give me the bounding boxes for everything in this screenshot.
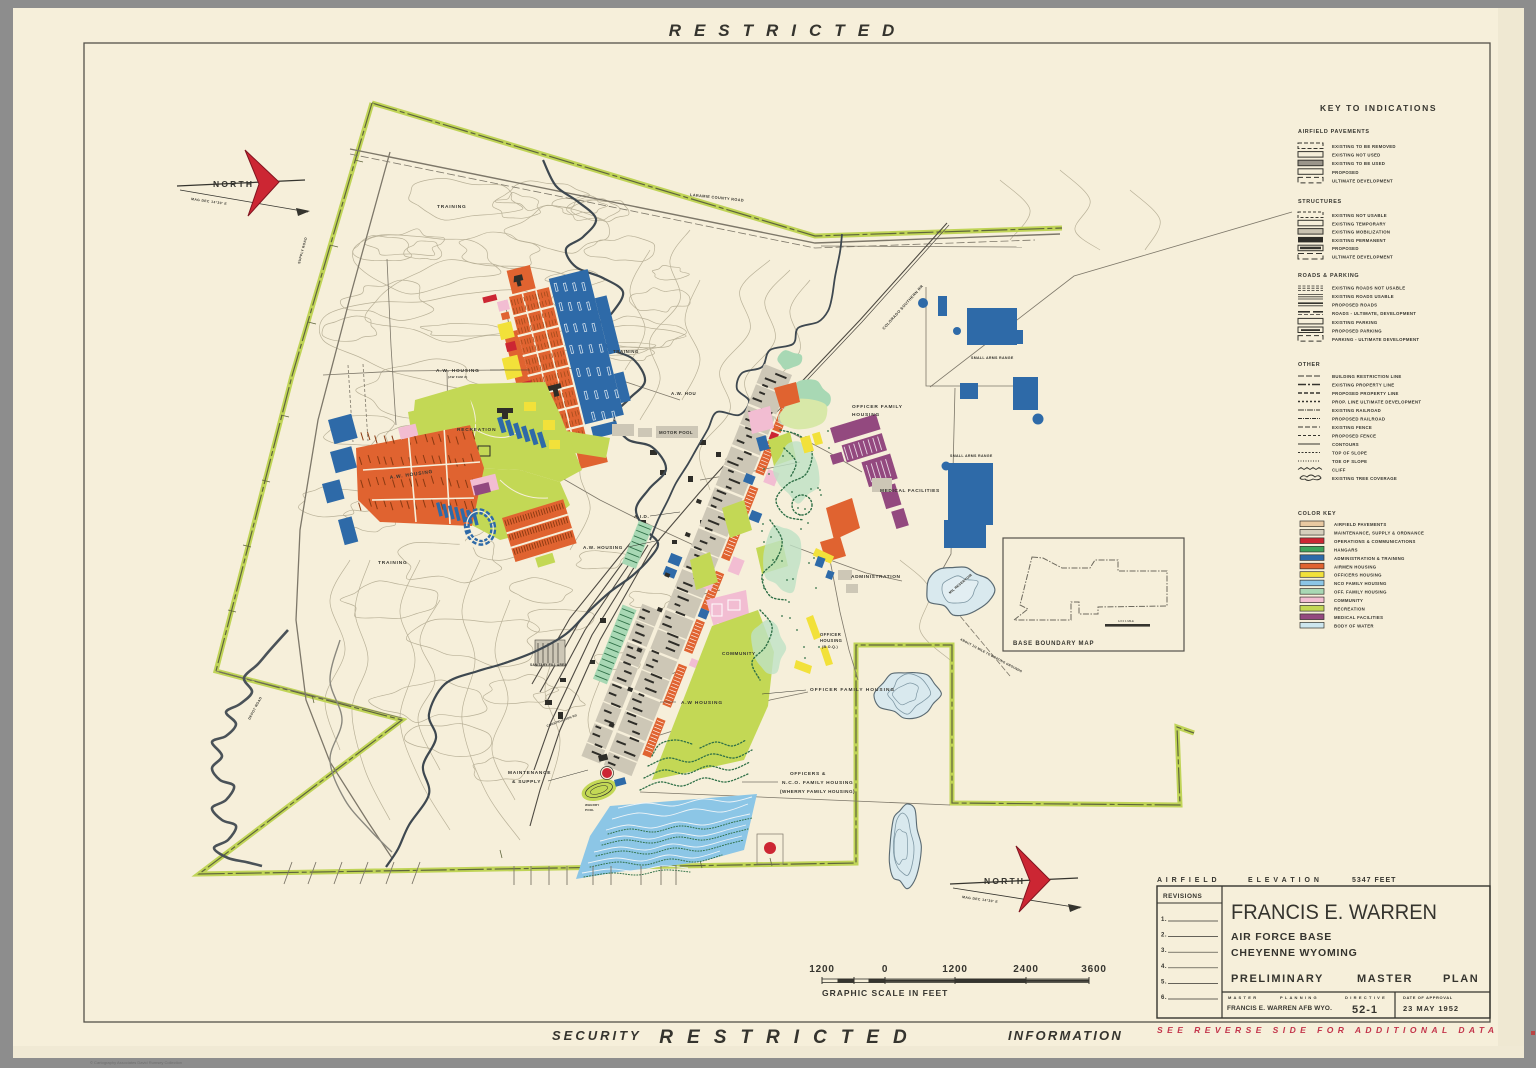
svg-text:MAINTENANCE, SUPPLY & ORDNA: MAINTENANCE, SUPPLY & ORDNANCE [1334,530,1424,535]
svg-text:N.C.O. FAMILY HOUSING: N.C.O. FAMILY HOUSING [782,780,853,786]
svg-text:HOUSING: HOUSING [820,638,842,643]
svg-text:A.W. HOU: A.W. HOU [671,391,696,396]
svg-text:EXISTING PARKING: EXISTING PARKING [1332,320,1378,325]
svg-text:FRANCIS E. WARREN: FRANCIS E. WARREN [1231,901,1437,924]
svg-text:A I R F I E L D: A I R F I E L D [1157,877,1218,884]
svg-text:ROADS & PARKING: ROADS & PARKING [1298,273,1359,279]
svg-text:CONTOURS: CONTOURS [1332,442,1359,447]
svg-text:NORTH: NORTH [213,179,254,189]
svg-text:NCO FAMILY HOUSING: NCO FAMILY HOUSING [1334,581,1387,586]
svg-text:PROPOSED: PROPOSED [1332,170,1359,175]
svg-text:AIRFIELD PAVEMENTS: AIRFIELD PAVEMENTS [1298,129,1370,135]
svg-text:5347 FEET: 5347 FEET [1352,877,1396,884]
svg-text:EXISTING NOT USABLE: EXISTING NOT USABLE [1332,213,1387,218]
svg-text:REVISIONS: REVISIONS [1163,893,1203,900]
svg-text:AIR FORCE BASE: AIR FORCE BASE [1231,931,1332,943]
svg-text:AIRMEN HOUSING: AIRMEN HOUSING [1334,564,1377,569]
svg-text:EXISTING TO BE USED: EXISTING TO BE USED [1332,161,1385,166]
svg-text:POOL: POOL [585,808,594,812]
svg-text:EXISTING PERMANENT: EXISTING PERMANENT [1332,238,1386,243]
svg-text:EXISTING FENCE: EXISTING FENCE [1332,425,1372,430]
svg-text:RECREATION: RECREATION [1334,607,1365,612]
svg-text:EXISTING MOBILIZATION: EXISTING MOBILIZATION [1332,230,1390,235]
svg-text:HOUSING: HOUSING [852,412,880,418]
svg-text:EXISTING TREE COVERAGE: EXISTING TREE COVERAGE [1332,476,1397,481]
svg-text:© Cartography Associates Davi: © Cartography Associates David Rumsey Co… [90,1060,182,1065]
svg-text:PARKING - ULTIMATE DEVELOPMEN: PARKING - ULTIMATE DEVELOPMENT [1332,337,1419,342]
svg-text:PROPOSED RAILROAD: PROPOSED RAILROAD [1332,417,1385,422]
svg-text:MEDICAL FACILITIES: MEDICAL FACILITIES [1334,615,1383,620]
svg-text:RESTRICTED: RESTRICTED [669,21,908,40]
svg-text:TRAINING: TRAINING [613,349,639,354]
svg-text:NORTH: NORTH [984,876,1025,886]
svg-text:OPERATIONS & COMMUNICATIONS: OPERATIONS & COMMUNICATIONS [1334,539,1416,544]
svg-text:SMALL ARMS RANGE: SMALL ARMS RANGE [971,356,1014,360]
svg-text:CLIFF: CLIFF [1332,468,1346,473]
svg-text:D I R E C T I V E: D I R E C T I V E [1345,995,1385,1000]
svg-text:3600: 3600 [1081,964,1106,975]
svg-text:MAINTENANCE: MAINTENANCE [508,770,551,776]
svg-text:OTHER: OTHER [1298,362,1320,368]
svg-text:ULTIMATE DEVELOPMENT: ULTIMATE DEVELOPMENT [1332,178,1393,183]
svg-text:OFFICER FAMILY HOUSING: OFFICER FAMILY HOUSING [810,687,895,693]
svg-text:6.: 6. [1161,995,1167,1001]
svg-text:PROPOSED PARKING: PROPOSED PARKING [1332,328,1382,333]
svg-text:M A S T E R: M A S T E R [1228,995,1257,1000]
svg-text:MOTOR POOL: MOTOR POOL [659,430,693,435]
svg-text:RESTRICTED: RESTRICTED [659,1027,920,1048]
svg-text:COMMUNITY: COMMUNITY [1334,598,1363,603]
svg-text:AIRFIELD PAVEMENTS: AIRFIELD PAVEMENTS [1334,522,1387,527]
svg-text:WHERRY: WHERRY [585,803,599,807]
svg-text:ADMINISTRATION: ADMINISTRATION [851,574,901,580]
svg-text:KEY TO INDICATIONS: KEY TO INDICATIONS [1320,103,1437,113]
svg-text:DATE OF APPROVAL: DATE OF APPROVAL [1403,995,1453,1000]
svg-text:4.: 4. [1161,964,1167,970]
svg-text:OFFICERS HOUSING: OFFICERS HOUSING [1334,573,1382,578]
svg-text:STRUCTURES: STRUCTURES [1298,199,1342,205]
svg-text:1200: 1200 [942,964,967,975]
svg-text:EXISTING PROPERTY LINE: EXISTING PROPERTY LINE [1332,383,1394,388]
svg-text:GRAPHIC SCALE IN FEET: GRAPHIC SCALE IN FEET [822,988,948,998]
svg-text:& SUPPLY: & SUPPLY [512,779,541,785]
svg-text:PROPOSED ROADS: PROPOSED ROADS [1332,303,1377,308]
svg-text:1.: 1. [1161,917,1167,923]
svg-text:TOP OF SLOPE: TOP OF SLOPE [1332,451,1367,456]
svg-text:(B.O.Q.): (B.O.Q.) [822,645,838,649]
svg-text:TRAINING: TRAINING [378,560,408,566]
svg-text:PROPOSED PROPERTY LINE: PROPOSED PROPERTY LINE [1332,391,1399,396]
svg-text:SECURITY: SECURITY [552,1028,642,1043]
svg-text:EXISTING TEMPORARY: EXISTING TEMPORARY [1332,221,1386,226]
svg-text:23 MAY 1952: 23 MAY 1952 [1403,1004,1459,1013]
svg-text:BASE BOUNDARY MAP: BASE BOUNDARY MAP [1013,641,1094,647]
svg-text:A.I.D.: A.I.D. [634,514,649,519]
svg-text:3.: 3. [1161,948,1167,954]
svg-text:OFFICERS &: OFFICERS & [790,771,826,777]
svg-text:5.: 5. [1161,979,1167,985]
svg-text:(AW FAM 2): (AW FAM 2) [448,375,468,379]
svg-text:1/2 0 1 MILE: 1/2 0 1 MILE [1118,619,1134,623]
svg-text:PRELIMINARY: PRELIMINARY [1231,973,1324,985]
svg-text:PLAN: PLAN [1443,973,1479,985]
svg-text:OFF. FAMILY HOUSING: OFF. FAMILY HOUSING [1334,590,1387,595]
svg-text:A.W. HOUSING: A.W. HOUSING [436,368,480,374]
svg-text:TRAINING: TRAINING [437,204,467,210]
svg-text:(WHERRY FAMILY HOUSING): (WHERRY FAMILY HOUSING) [780,789,855,794]
svg-text:E L E V A T I O N: E L E V A T I O N [1248,877,1320,884]
svg-text:BUILDING RESTRICTION LINE: BUILDING RESTRICTION LINE [1332,374,1402,379]
svg-text:COLOR KEY: COLOR KEY [1298,511,1336,517]
svg-text:PROPOSED: PROPOSED [1332,246,1359,251]
svg-text:RECREATION: RECREATION [457,427,496,433]
svg-text:SANITARY FILL AREA: SANITARY FILL AREA [530,663,567,667]
svg-text:PROP. LINE ULTIMATE DEVELOPM: PROP. LINE ULTIMATE DEVELOPMENT [1332,400,1421,405]
svg-text:1200: 1200 [809,964,834,975]
svg-text:P L A N N I N G: P L A N N I N G [1280,995,1317,1000]
svg-text:TOE OF SLOPE: TOE OF SLOPE [1332,459,1367,464]
svg-text:52-1: 52-1 [1352,1004,1378,1016]
svg-text:BODY OF WATER: BODY OF WATER [1334,623,1374,628]
svg-text:INFORMATION: INFORMATION [1008,1028,1123,1043]
svg-text:PROPOSED FENCE: PROPOSED FENCE [1332,434,1376,439]
svg-text:2400: 2400 [1013,964,1038,975]
svg-text:A.W. HOUSING: A.W. HOUSING [583,545,623,550]
svg-text:FRANCIS E. WARREN AFB WYO.: FRANCIS E. WARREN AFB WYO. [1227,1005,1332,1012]
svg-text:ROADS - ULTIMATE, DEVELOPMENT: ROADS - ULTIMATE, DEVELOPMENT [1332,311,1416,316]
svg-text:CHEYENNE WYOMING: CHEYENNE WYOMING [1231,947,1358,959]
svg-text:EXISTING ROADS NOT USABLE: EXISTING ROADS NOT USABLE [1332,285,1405,290]
svg-text:2.: 2. [1161,933,1167,939]
svg-text:ULTIMATE DEVELOPMENT: ULTIMATE DEVELOPMENT [1332,255,1393,260]
svg-text:ADMINISTRATION & TRAINING: ADMINISTRATION & TRAINING [1334,556,1405,561]
svg-text:0: 0 [882,964,888,975]
svg-text:HANGARS: HANGARS [1334,547,1358,552]
svg-text:EXISTING NOT USED: EXISTING NOT USED [1332,153,1381,158]
svg-text:MASTER: MASTER [1357,973,1413,985]
svg-text:OFFICER FAMILY: OFFICER FAMILY [852,404,903,410]
svg-text:OFFICER: OFFICER [820,632,841,637]
svg-text:A.W HOUSING: A.W HOUSING [681,700,723,706]
svg-text:EXISTING RAILROAD: EXISTING RAILROAD [1332,408,1381,413]
svg-text:MEDICAL FACILITIES: MEDICAL FACILITIES [880,488,940,494]
svg-text:EXISTING ROADS USABLE: EXISTING ROADS USABLE [1332,294,1394,299]
svg-text:EXISTING TO BE REMOVED: EXISTING TO BE REMOVED [1332,144,1396,149]
svg-text:SMALL ARMS RANGE: SMALL ARMS RANGE [950,454,993,458]
svg-text:COMMUNITY: COMMUNITY [722,651,756,656]
